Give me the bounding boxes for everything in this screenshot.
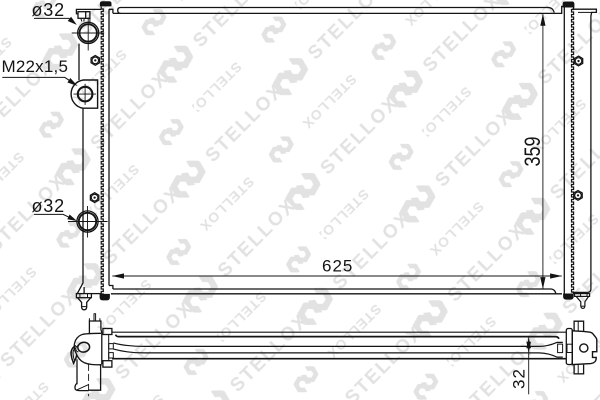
svg-text:32: 32 (510, 368, 529, 389)
svg-text:359: 359 (521, 136, 545, 166)
svg-text:ø32: ø32 (32, 0, 65, 20)
svg-text:M22x1,5: M22x1,5 (2, 57, 69, 76)
svg-text:ø32: ø32 (32, 196, 65, 216)
svg-text:625: 625 (322, 257, 353, 276)
